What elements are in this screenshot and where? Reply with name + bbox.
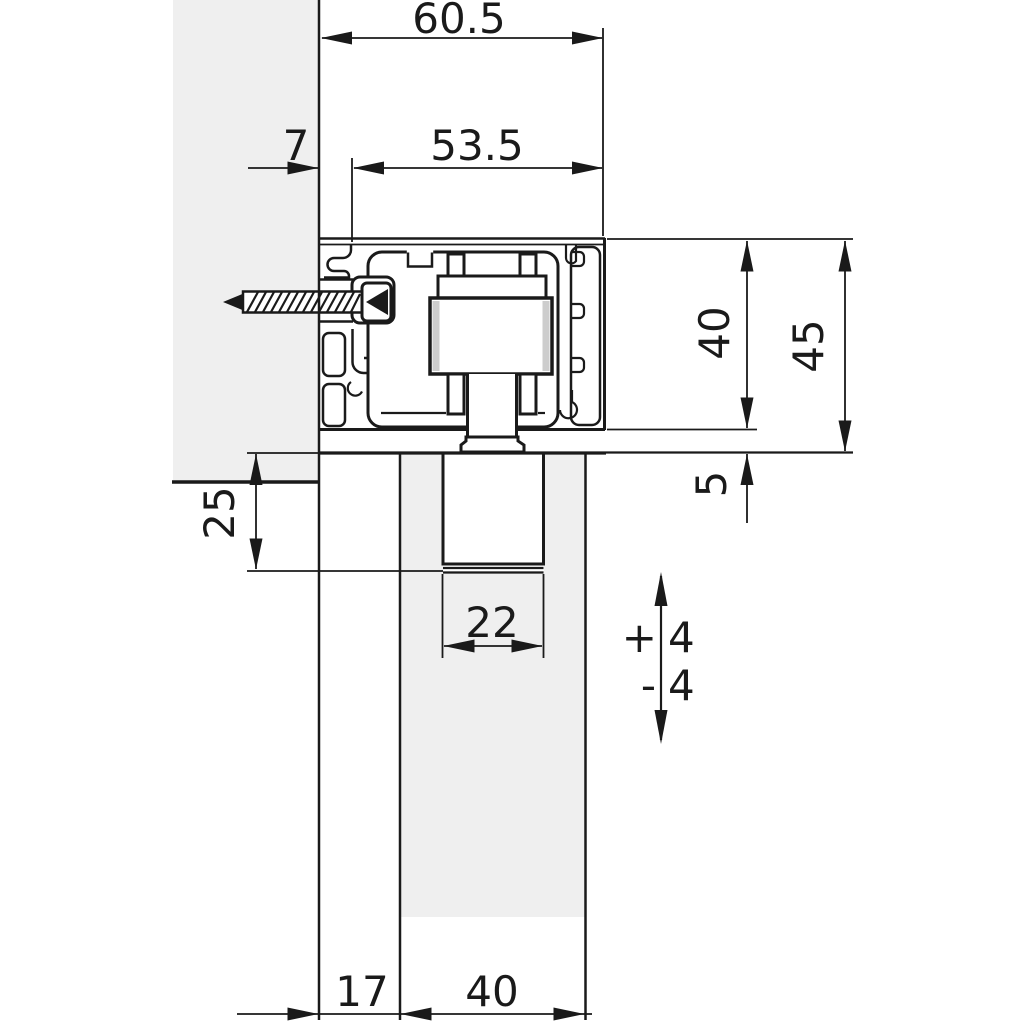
arrowhead — [288, 1008, 319, 1021]
cover-channel — [560, 244, 600, 425]
adjust-down-sign: - — [641, 661, 656, 710]
dim-label: 60.5 — [412, 0, 506, 43]
adjust-down-value: 4 — [668, 661, 695, 710]
dim-floor-gap: 17 — [237, 967, 389, 1021]
dim-label: 45 — [784, 319, 833, 372]
suspension-bolt-fill — [469, 374, 515, 437]
dim-label: 22 — [465, 598, 518, 647]
adjustment-nut — [461, 437, 524, 452]
arrowhead-left — [353, 162, 384, 175]
arrowhead-right — [572, 162, 603, 175]
roller-wheel — [430, 298, 552, 374]
track-profile — [319, 238, 605, 437]
hanger-arm-right-lower — [520, 374, 536, 414]
dim-label: 7 — [283, 121, 310, 170]
dim-inner-width: 53.5 — [352, 121, 603, 242]
dim-overall-width: 60.5 — [321, 0, 603, 236]
roller-end-shading-left — [433, 301, 440, 371]
door-panel — [400, 453, 586, 1020]
arrowhead-right — [554, 1008, 585, 1021]
arrowhead-top — [741, 241, 754, 272]
arrowhead — [741, 454, 754, 485]
clip-slot-upper — [323, 333, 345, 376]
channel-body — [571, 247, 600, 425]
dim-label: 5 — [687, 471, 736, 498]
arrowhead-bottom — [250, 539, 263, 570]
arrowhead-right — [572, 32, 603, 45]
dim-label: 17 — [335, 967, 388, 1016]
roller-carriage — [368, 251, 558, 438]
arrowhead-bottom — [741, 398, 754, 429]
dim-total-height: 45 — [784, 241, 852, 452]
top-clip-hook — [324, 245, 351, 278]
dim-label: 53.5 — [430, 121, 524, 170]
wall-material-fill — [173, 0, 319, 482]
hanger-arm-left-lower — [448, 374, 464, 414]
arrowhead-top — [839, 241, 852, 272]
adjust-up-sign: + — [622, 613, 657, 662]
door-bracket — [443, 453, 544, 564]
carriage-notch-fill — [407, 251, 433, 267]
roller-end-shading-right — [543, 301, 550, 371]
arrowhead-down — [655, 710, 668, 744]
clip-slot-lower — [323, 384, 345, 426]
dim-label: 40 — [690, 306, 739, 359]
wall-section — [172, 0, 319, 482]
clip-curl — [348, 382, 362, 396]
arrowhead-left — [401, 1008, 432, 1021]
ceiling-line — [247, 453, 853, 454]
cross-section-drawing: 60.5 53.5 7 40 45 5 — [0, 0, 1024, 1024]
arrowhead-left — [321, 32, 352, 45]
adjust-up-value: 4 — [668, 613, 695, 662]
arrowhead-bottom — [839, 421, 852, 452]
dim-label: 40 — [465, 967, 518, 1016]
dim-label: 25 — [195, 486, 244, 539]
dim-height-adjustment: + 4 - 4 — [622, 572, 695, 744]
dim-clearance: 5 — [687, 454, 754, 523]
hanger-crossbar — [438, 276, 546, 298]
technical-drawing-canvas: 60.5 53.5 7 40 45 5 — [0, 0, 1024, 1024]
arrowhead-up — [655, 572, 668, 606]
